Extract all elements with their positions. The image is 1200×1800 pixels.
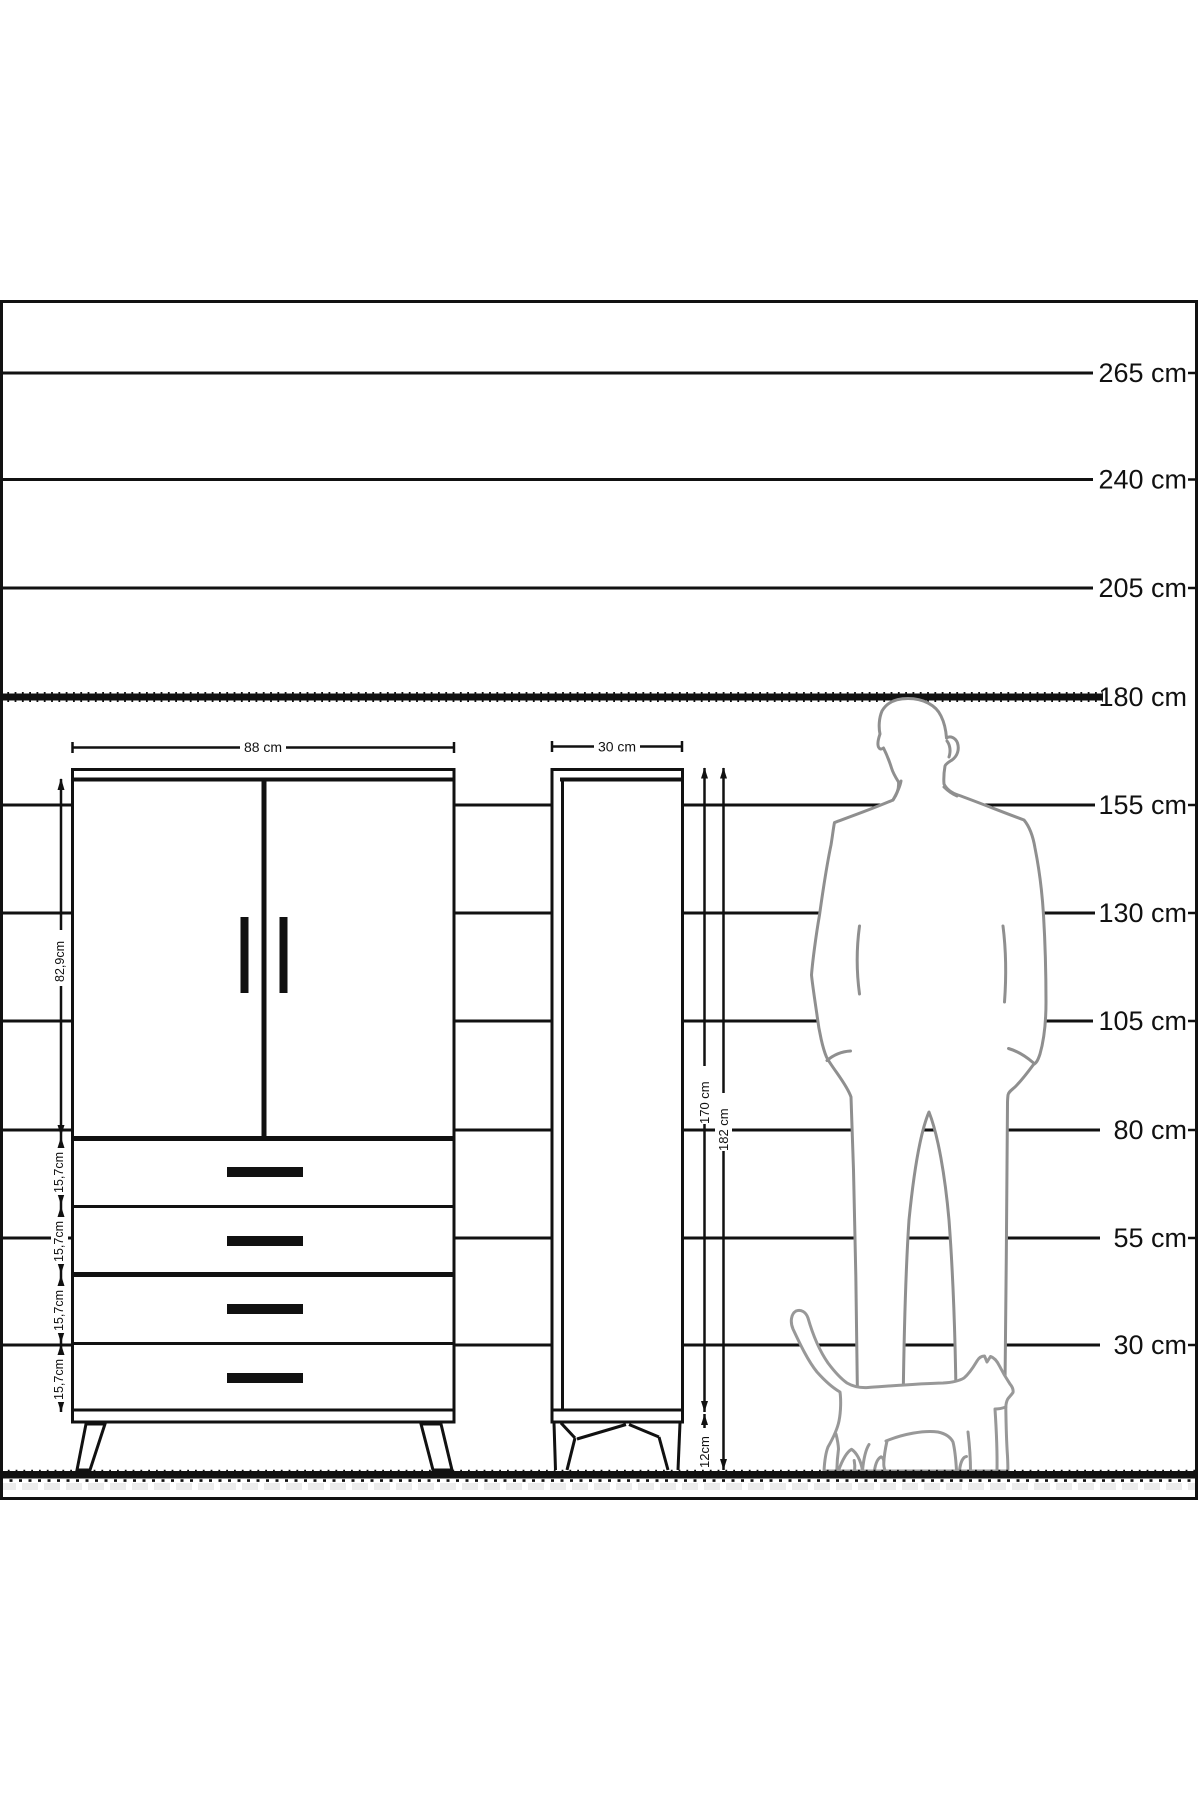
svg-text:180 cm: 180 cm	[1098, 682, 1187, 712]
svg-text:55 cm: 55 cm	[1113, 1223, 1187, 1253]
svg-text:15,7cm: 15,7cm	[52, 1359, 66, 1400]
svg-text:240 cm: 240 cm	[1098, 465, 1187, 495]
svg-text:155 cm: 155 cm	[1098, 790, 1187, 820]
svg-text:88 cm: 88 cm	[244, 739, 282, 755]
svg-text:265 cm: 265 cm	[1098, 358, 1187, 388]
svg-text:30 cm: 30 cm	[1113, 1330, 1187, 1360]
svg-text:82,9cm: 82,9cm	[53, 941, 67, 982]
svg-text:15,7cm: 15,7cm	[52, 1152, 66, 1193]
svg-text:205 cm: 205 cm	[1098, 573, 1187, 603]
svg-text:130 cm: 130 cm	[1098, 898, 1187, 928]
svg-text:80 cm: 80 cm	[1113, 1115, 1187, 1145]
svg-text:30 cm: 30 cm	[598, 739, 636, 755]
svg-text:15,7cm: 15,7cm	[52, 1221, 66, 1262]
svg-text:15,7cm: 15,7cm	[52, 1290, 66, 1331]
svg-text:182 cm: 182 cm	[716, 1108, 731, 1151]
svg-text:170 cm: 170 cm	[697, 1081, 712, 1124]
svg-text:105 cm: 105 cm	[1098, 1006, 1187, 1036]
svg-text:12cm: 12cm	[697, 1436, 712, 1468]
